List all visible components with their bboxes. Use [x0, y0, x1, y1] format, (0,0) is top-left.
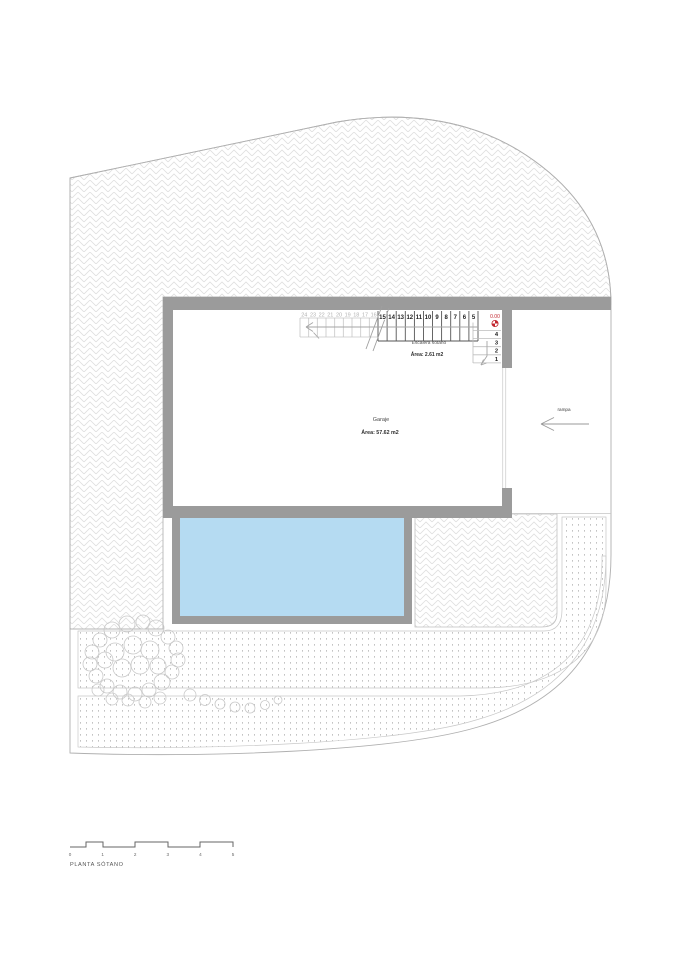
level-marker: 0.00 — [490, 314, 500, 327]
svg-text:4: 4 — [495, 332, 499, 338]
stair-upper-flight — [300, 318, 378, 337]
svg-text:20: 20 — [336, 313, 342, 319]
svg-text:21: 21 — [327, 313, 333, 319]
stair-run-numbers: 24 23 22 21 20 19 18 17 16 15 14 13 12 1… — [301, 313, 476, 322]
svg-text:23: 23 — [310, 313, 316, 319]
svg-text:11: 11 — [416, 315, 423, 321]
level-marker-value: 0.00 — [490, 314, 500, 320]
pool-water — [180, 517, 404, 616]
svg-text:3: 3 — [167, 852, 170, 857]
svg-text:16: 16 — [371, 313, 377, 319]
svg-text:6: 6 — [463, 315, 467, 321]
svg-text:13: 13 — [397, 315, 404, 321]
svg-text:0: 0 — [69, 852, 72, 857]
svg-text:17: 17 — [362, 313, 368, 319]
plan-drawing: 0.00 24 23 22 21 20 19 18 17 16 15 14 13… — [0, 0, 679, 960]
svg-text:2: 2 — [134, 852, 137, 857]
svg-text:15: 15 — [379, 315, 386, 321]
svg-text:12: 12 — [406, 315, 413, 321]
ramp-label: rampa — [557, 407, 570, 412]
garage-label: Garaje — [373, 417, 390, 423]
svg-text:22: 22 — [319, 313, 325, 319]
svg-text:18: 18 — [353, 313, 359, 319]
ramp-arrow — [541, 418, 589, 431]
svg-text:1: 1 — [495, 357, 499, 363]
svg-text:14: 14 — [388, 315, 395, 321]
svg-text:2: 2 — [495, 349, 498, 355]
floor-plan-sheet: 0.00 24 23 22 21 20 19 18 17 16 15 14 13… — [0, 0, 679, 960]
svg-text:5: 5 — [232, 852, 235, 857]
wall-right-stub — [502, 488, 512, 518]
svg-text:3: 3 — [495, 340, 499, 346]
svg-text:4: 4 — [199, 852, 202, 857]
plan-title: PLANTA SÓTANO — [70, 861, 124, 868]
terrace-hatch — [415, 514, 557, 627]
svg-text:19: 19 — [345, 313, 351, 319]
wall-top — [163, 297, 611, 310]
scale-bar: 0 1 2 3 4 5 — [69, 842, 235, 857]
svg-text:1: 1 — [101, 852, 104, 857]
svg-text:10: 10 — [425, 315, 432, 321]
stair-corner-numbers: 4 3 2 1 — [495, 332, 499, 363]
stair-room-label: Escalera sótano — [412, 340, 447, 346]
svg-text:9: 9 — [435, 315, 439, 321]
svg-text:7: 7 — [454, 315, 458, 321]
garage-door — [503, 368, 506, 488]
wall-bottom — [163, 506, 512, 518]
svg-text:24: 24 — [301, 313, 307, 319]
svg-text:5: 5 — [472, 315, 476, 321]
svg-text:8: 8 — [445, 315, 449, 321]
garage-area: Área: 57.62 m2 — [361, 429, 398, 436]
pool — [172, 509, 412, 624]
wall-left — [163, 310, 173, 510]
stair-room-area: Área: 2.61 m2 — [411, 351, 444, 358]
wall-right-upper — [502, 310, 512, 368]
